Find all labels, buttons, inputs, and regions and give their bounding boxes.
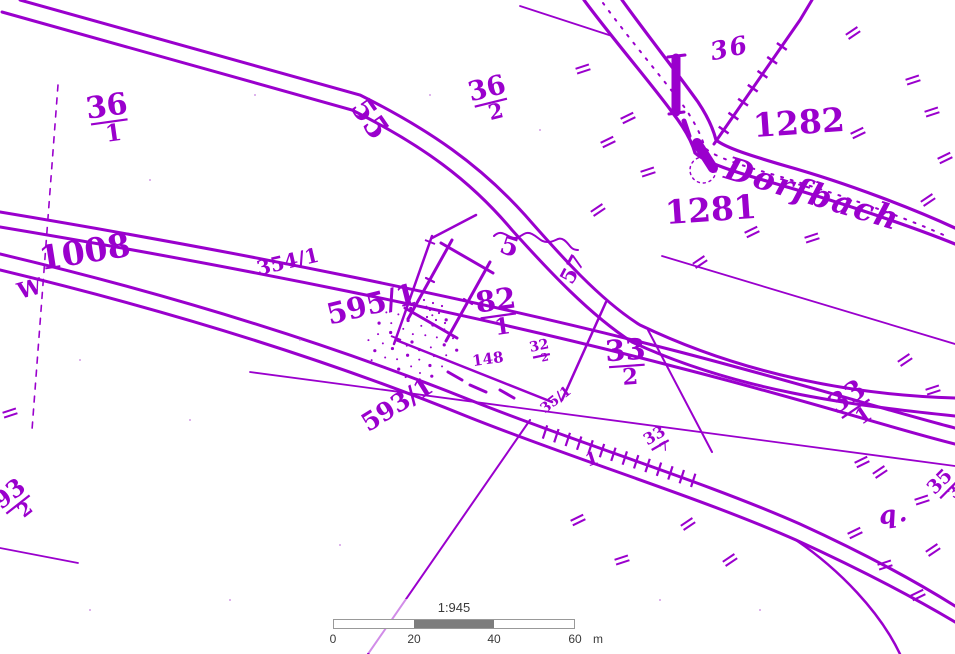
parcel-35-3: 353 [923, 465, 955, 510]
map-labels: 3611008W595/1354/1553623612821281Dorfbac… [0, 30, 955, 531]
scalebar-tick-20: 20 [407, 632, 420, 646]
stream-gauge-cap-bottom [669, 112, 684, 114]
parcel-32-2: 322 [528, 336, 553, 366]
svg-text:1282: 1282 [752, 100, 846, 145]
svg-text:1008: 1008 [36, 225, 133, 278]
svg-text:W: W [13, 273, 45, 305]
scalebar-tick-40: 40 [487, 632, 500, 646]
scalebar-segment-1 [334, 620, 414, 628]
parcel-93-2: 932 [0, 472, 43, 531]
road-lower-spur [796, 540, 900, 654]
road-1008-lower [0, 227, 955, 444]
scalebar: 1:945 0 20 40 60 m [320, 599, 608, 653]
scalebar-segment-2 [414, 620, 494, 628]
scalebar-bar [333, 619, 575, 629]
svg-text:q.: q. [877, 498, 911, 531]
parcel-55: 55 [343, 92, 396, 146]
svg-text:2: 2 [621, 364, 639, 391]
parcel-36-2: 362 [465, 69, 514, 128]
svg-text:1281: 1281 [664, 187, 758, 232]
parcel-1008: 1008 [36, 225, 133, 278]
svg-text:1: 1 [493, 313, 512, 341]
map-viewport: 3611008W595/1354/1553623612821281Dorfbac… [0, 0, 955, 654]
stream-gauge-cap-top [668, 55, 685, 57]
svg-text:5: 5 [496, 230, 522, 264]
parcel-82-1: 821 [473, 280, 521, 343]
parcel-593-1: 593/1 [356, 371, 438, 437]
stream-bend-bar [697, 143, 713, 168]
marker-w: W [13, 273, 45, 305]
svg-text:1: 1 [583, 448, 601, 472]
scalebar-segment-3 [494, 620, 574, 628]
parcel-36: 36 [708, 30, 752, 66]
svg-text:55: 55 [343, 92, 396, 146]
parcel-33-2: 332 [604, 332, 648, 392]
stream-small-bar [684, 121, 689, 136]
svg-text:354/1: 354/1 [254, 243, 321, 281]
svg-text:33: 33 [604, 332, 647, 369]
scalebar-tick-60: 60 [568, 632, 581, 646]
scalebar-unit: m [593, 632, 603, 646]
svg-text:593/1: 593/1 [356, 371, 438, 437]
parcel-354-1: 354/1 [254, 243, 321, 281]
scalebar-ticks: 0 20 40 60 m [320, 632, 608, 650]
svg-text:36: 36 [708, 30, 752, 66]
svg-text:2: 2 [540, 350, 550, 364]
svg-text:148: 148 [471, 348, 505, 370]
boundary-below-1281 [662, 256, 955, 344]
survey-tick-marks [391, 43, 787, 487]
svg-text:35/1: 35/1 [538, 383, 575, 417]
svg-text:7: 7 [657, 438, 672, 455]
symbol-5: 5 [496, 230, 522, 264]
scalebar-ratio: 1:945 [333, 600, 575, 615]
yard-top-edge [432, 215, 476, 238]
parcel-148: 148 [471, 348, 505, 370]
parcel-595-1: 595/1 [323, 277, 420, 332]
symbol-1: 1 [583, 448, 601, 472]
bottom-left-line [0, 548, 78, 563]
svg-text:2: 2 [486, 97, 506, 125]
parcel-1281: 1281 [664, 187, 758, 232]
parcel-1282: 1282 [752, 100, 846, 145]
parcel-36-1: 361 [84, 86, 133, 150]
svg-text:1: 1 [103, 118, 123, 148]
letter-q: q. [877, 498, 911, 531]
parcel-35-1: 35/1 [538, 383, 575, 417]
yard-right-edge [562, 302, 606, 400]
scalebar-tick-0: 0 [330, 632, 337, 646]
svg-text:595/1: 595/1 [323, 277, 420, 332]
map-canvas[interactable]: 3611008W595/1354/1553623612821281Dorfbac… [0, 0, 955, 654]
